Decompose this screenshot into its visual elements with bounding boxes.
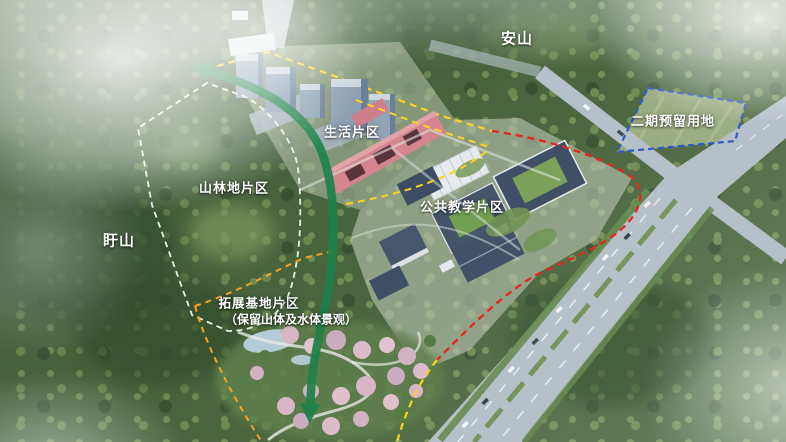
label-xushan-mountain: 盱山: [103, 230, 135, 251]
label-teaching-zone: 公共教学片区: [420, 197, 504, 216]
label-expansion-zone: 拓展基地片区: [218, 293, 299, 312]
label-mountain-forest-zone: 山林地片区: [199, 178, 269, 197]
label-anshan-mountain: 安山: [501, 28, 533, 49]
masterplan-aerial-view: 安山 二期预留用地 生活片区 山林地片区 盱山 公共教学片区 拓展基地片区 （保…: [0, 0, 786, 442]
site-plan-render: [0, 0, 786, 442]
cherry-garden: [215, 320, 445, 440]
label-phase2-reserved-land: 二期预留用地: [631, 111, 715, 130]
label-living-quarter: 生活片区: [324, 122, 380, 141]
label-expansion-zone-note: （保留山体及水体景观）: [225, 311, 357, 328]
